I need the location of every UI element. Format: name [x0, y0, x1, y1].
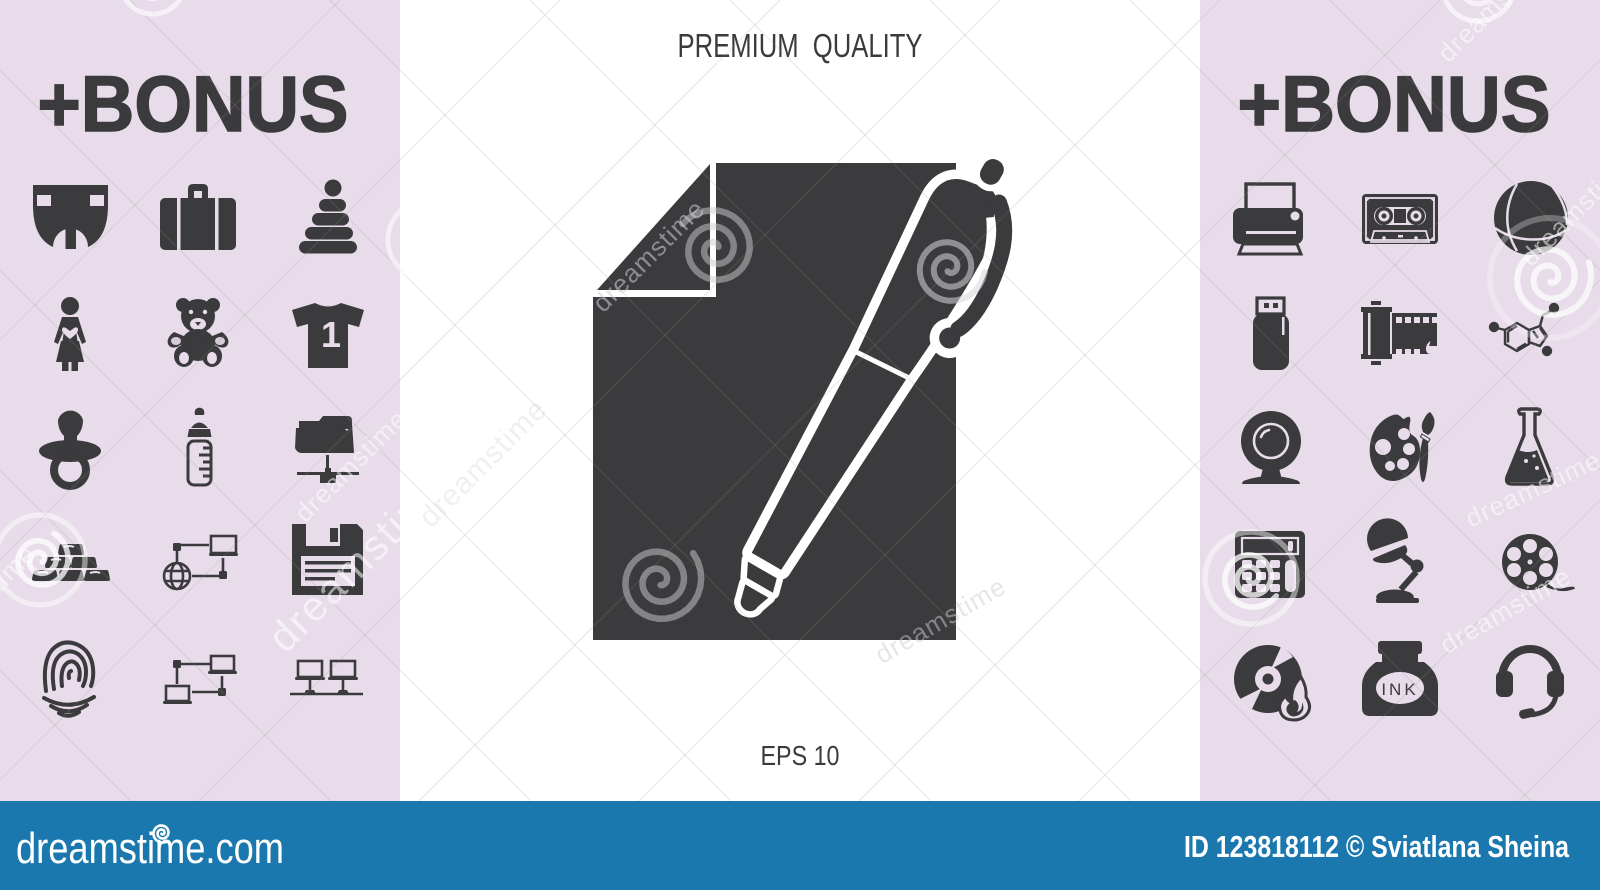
svg-text:+BONUS: +BONUS	[1238, 59, 1551, 148]
svg-text:ID 123818112 © Sviatlana Shein: ID 123818112 © Sviatlana Sheina	[1184, 829, 1570, 864]
svg-text:dreamstime.com: dreamstime.com	[16, 824, 284, 873]
svg-text:1: 1	[321, 314, 341, 355]
svg-text:+BONUS: +BONUS	[38, 59, 349, 148]
svg-text:EPS 10: EPS 10	[761, 740, 840, 771]
svg-text:PREMIUM QUALITY: PREMIUM QUALITY	[678, 28, 923, 65]
